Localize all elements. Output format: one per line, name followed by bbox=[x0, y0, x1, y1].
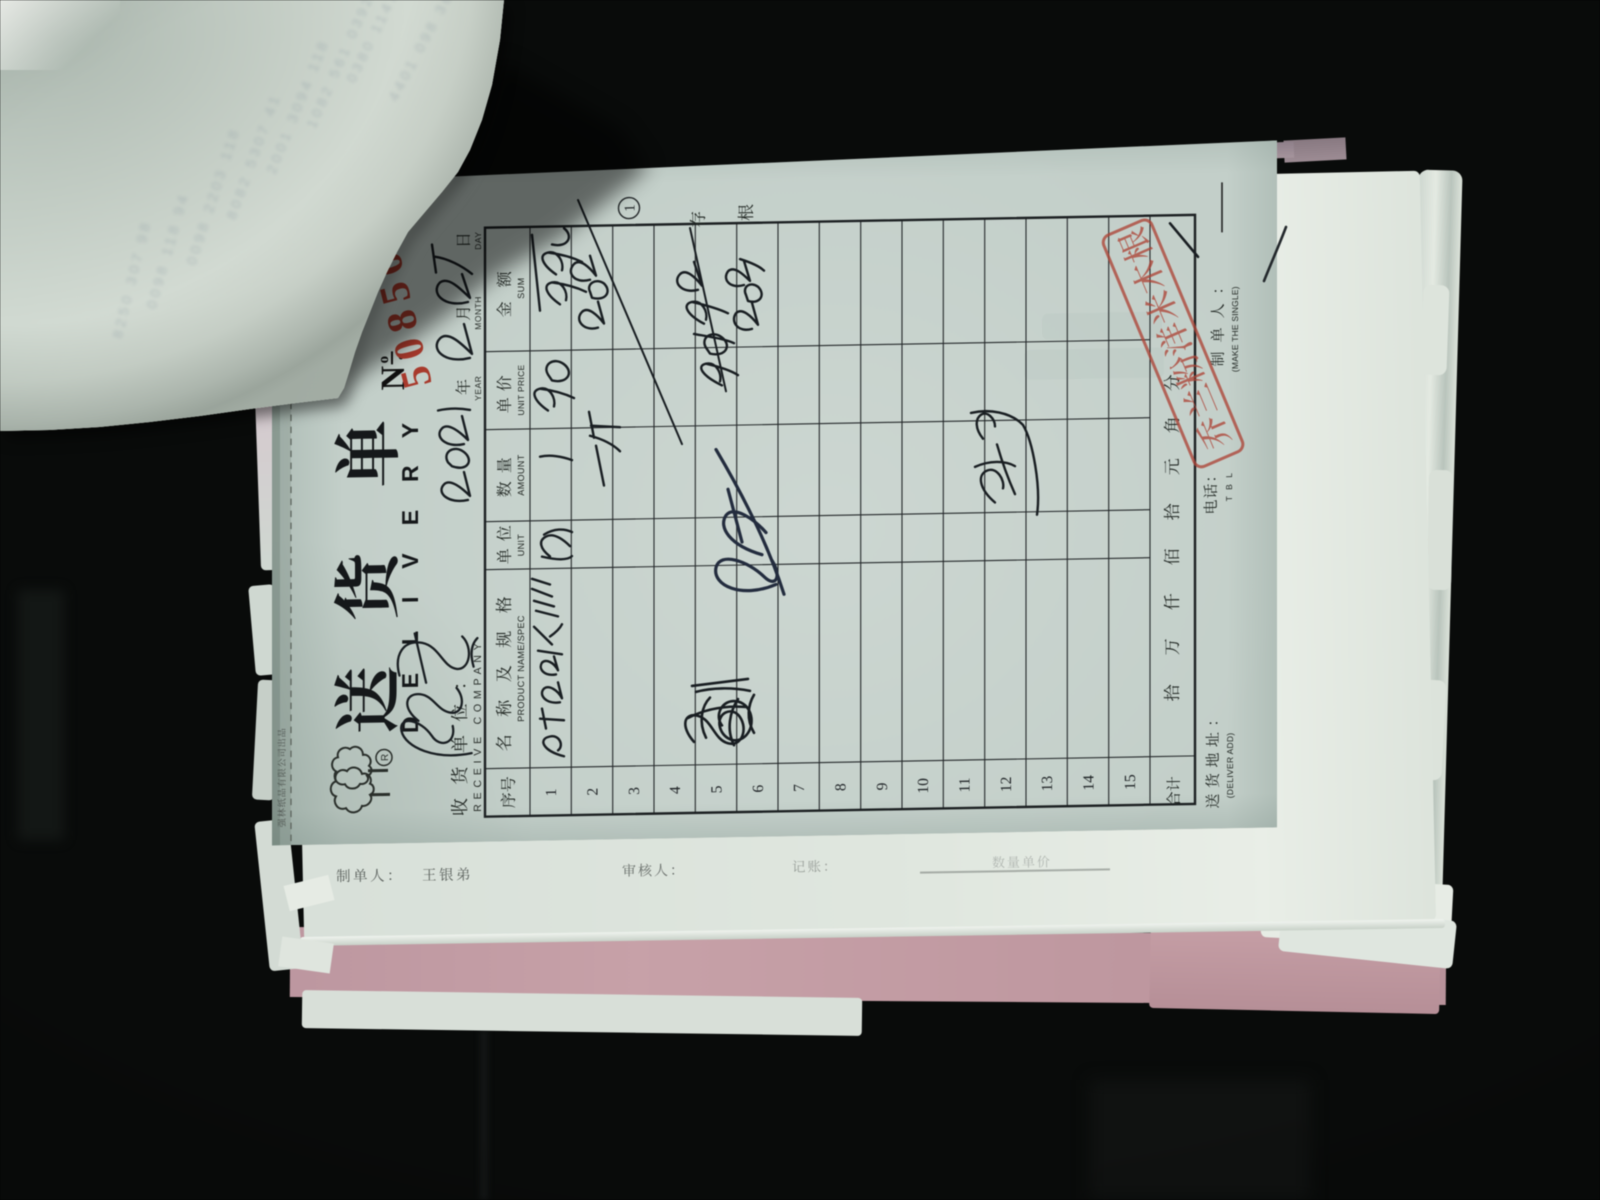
svg-text:(MAKE THE SINGLE): (MAKE THE SINGLE) bbox=[1230, 286, 1240, 372]
svg-text:15: 15 bbox=[1122, 774, 1139, 790]
svg-text:7: 7 bbox=[791, 784, 808, 792]
svg-text:13: 13 bbox=[1039, 775, 1056, 791]
svg-text:12: 12 bbox=[998, 776, 1015, 792]
svg-text:5: 5 bbox=[709, 785, 726, 793]
svg-text:3: 3 bbox=[626, 787, 643, 795]
svg-text:UNIT: UNIT bbox=[516, 534, 526, 557]
svg-text:2: 2 bbox=[585, 788, 602, 796]
svg-text:14: 14 bbox=[1081, 775, 1098, 791]
svg-text:PRODUCT NAME/SPEC: PRODUCT NAME/SPEC bbox=[516, 615, 526, 722]
svg-text:6: 6 bbox=[750, 784, 767, 792]
svg-text:R: R bbox=[380, 754, 391, 761]
svg-text:(DELIVER ADD): (DELIVER ADD) bbox=[1225, 732, 1235, 798]
svg-text:T B L: T B L bbox=[1224, 471, 1234, 501]
svg-text:9: 9 bbox=[874, 782, 891, 790]
svg-text:1: 1 bbox=[543, 788, 560, 796]
svg-text:8: 8 bbox=[833, 783, 850, 791]
svg-text:11: 11 bbox=[957, 777, 974, 792]
svg-text:4: 4 bbox=[667, 786, 684, 794]
svg-text:10: 10 bbox=[915, 778, 932, 794]
